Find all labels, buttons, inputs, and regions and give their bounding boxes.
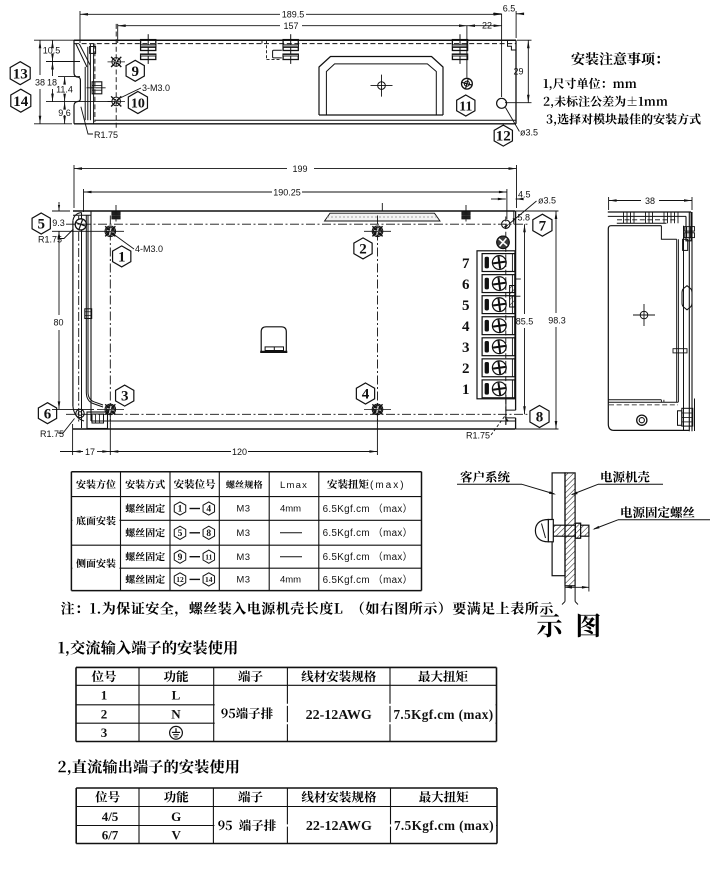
svg-text:17: 17 [85, 447, 95, 457]
svg-text:Lmax: Lmax [280, 480, 308, 491]
svg-text:ø3.5: ø3.5 [538, 196, 556, 206]
svg-text:M3: M3 [236, 528, 250, 539]
svg-text:3: 3 [101, 725, 108, 740]
svg-text:4mm: 4mm [280, 575, 301, 586]
svg-text:157: 157 [283, 21, 298, 31]
svg-text:189.5: 189.5 [282, 10, 305, 20]
svg-text:98.3: 98.3 [548, 316, 566, 326]
svg-text:190.25: 190.25 [273, 188, 301, 198]
svg-text:4: 4 [206, 505, 211, 515]
svg-text:22-12AWG: 22-12AWG [306, 819, 372, 834]
svg-text:14: 14 [205, 575, 213, 584]
svg-text:4: 4 [362, 387, 370, 403]
svg-text:9.3: 9.3 [52, 218, 65, 228]
svg-text:9: 9 [131, 64, 139, 80]
svg-text:6.5Kgf.cm （max）: 6.5Kgf.cm （max） [323, 503, 413, 515]
svg-text:85.5: 85.5 [516, 316, 534, 326]
svg-text:3-M3.0: 3-M3.0 [142, 83, 170, 93]
svg-text:10.5: 10.5 [43, 46, 61, 56]
svg-text:5: 5 [37, 217, 45, 233]
svg-text:4/5: 4/5 [102, 809, 119, 824]
svg-text:5.8: 5.8 [518, 213, 531, 223]
svg-text:V: V [172, 827, 182, 842]
svg-text:M3: M3 [236, 552, 250, 563]
svg-text:38: 38 [645, 196, 655, 206]
svg-text:9.6: 9.6 [58, 108, 71, 118]
svg-text:4: 4 [462, 319, 470, 335]
svg-text:6: 6 [462, 277, 470, 293]
svg-text:120: 120 [232, 447, 247, 457]
svg-text:7: 7 [539, 218, 547, 234]
svg-text:6.5Kgf.cm （max）: 6.5Kgf.cm （max） [323, 527, 413, 539]
svg-text:6.5Kgf.cm （max）: 6.5Kgf.cm （max） [323, 574, 413, 586]
svg-text:(max): (max) [370, 480, 406, 491]
svg-text:7.5Kgf.cm (max): 7.5Kgf.cm (max) [394, 818, 494, 833]
svg-text:29: 29 [513, 67, 523, 77]
svg-text:80: 80 [53, 318, 63, 328]
svg-text:22-12AWG: 22-12AWG [306, 708, 372, 723]
svg-text:38: 38 [35, 78, 45, 88]
svg-text:7.5Kgf.cm (max): 7.5Kgf.cm (max) [393, 707, 493, 722]
svg-text:1: 1 [101, 688, 108, 703]
svg-text:3: 3 [121, 389, 129, 405]
svg-text:9: 9 [178, 553, 183, 563]
svg-text:11: 11 [459, 99, 472, 114]
svg-text:2: 2 [101, 707, 108, 722]
svg-text:2: 2 [462, 361, 470, 377]
svg-text:22: 22 [482, 21, 492, 31]
svg-text:5: 5 [178, 529, 183, 539]
svg-text:11.4: 11.4 [56, 85, 73, 95]
svg-text:4.5: 4.5 [518, 190, 531, 200]
svg-text:6.5Kgf.cm （max）: 6.5Kgf.cm （max） [323, 551, 413, 563]
svg-text:1: 1 [178, 505, 183, 515]
svg-text:11: 11 [205, 552, 212, 561]
svg-text:2: 2 [359, 242, 367, 258]
svg-text:1: 1 [462, 382, 470, 398]
svg-text:14: 14 [13, 94, 29, 110]
svg-text:M3: M3 [236, 575, 250, 586]
svg-text:4-M3.0: 4-M3.0 [135, 244, 163, 254]
svg-text:199: 199 [292, 164, 307, 174]
svg-text:ø3.5: ø3.5 [520, 128, 538, 138]
svg-text:1: 1 [118, 250, 126, 266]
svg-text:10: 10 [131, 96, 145, 111]
svg-text:6.5: 6.5 [503, 4, 516, 14]
svg-text:4mm: 4mm [280, 504, 301, 515]
svg-text:G: G [171, 809, 181, 824]
svg-text:R1.75: R1.75 [466, 431, 490, 441]
svg-text:8: 8 [536, 410, 544, 426]
svg-text:6/7: 6/7 [102, 827, 119, 842]
svg-text:5: 5 [462, 298, 470, 314]
svg-text:R1.75: R1.75 [94, 130, 118, 140]
svg-text:8: 8 [206, 529, 211, 539]
svg-text:12: 12 [176, 575, 184, 584]
svg-text:L: L [172, 688, 181, 703]
svg-text:N: N [171, 707, 181, 722]
svg-text:13: 13 [13, 66, 28, 82]
svg-text:3: 3 [462, 340, 470, 356]
svg-text:12: 12 [496, 129, 511, 145]
svg-text:M3: M3 [236, 504, 250, 515]
svg-text:R1.75: R1.75 [40, 429, 64, 439]
svg-text:6: 6 [44, 406, 52, 422]
svg-text:7: 7 [462, 256, 470, 272]
